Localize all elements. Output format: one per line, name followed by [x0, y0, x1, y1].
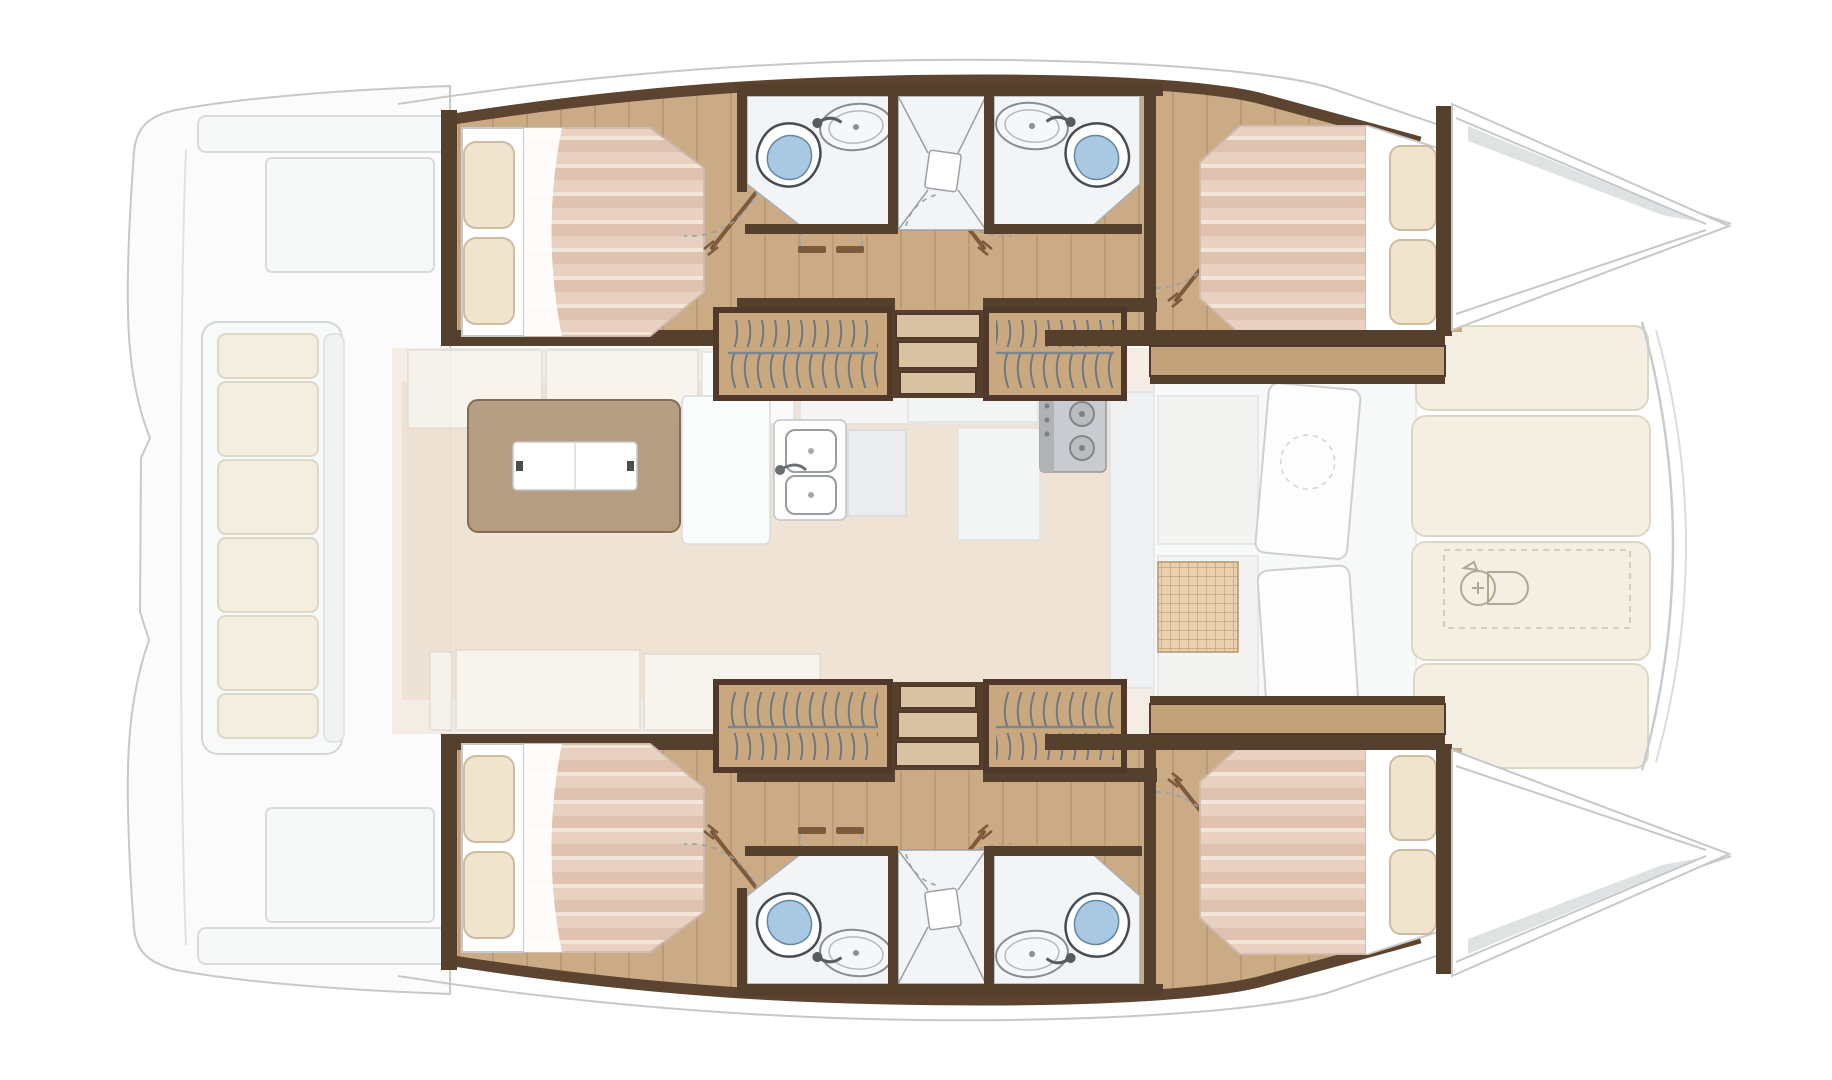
bench-cushion: [218, 616, 318, 690]
fwd-door-panel: [1255, 382, 1361, 559]
aft-locker: [266, 158, 434, 272]
bench-cushion: [218, 460, 318, 534]
sunpad-panel: [1412, 542, 1650, 660]
aft-beam-platform: [198, 116, 450, 152]
bench-cushion: [218, 538, 318, 612]
stove: [1040, 392, 1106, 472]
catamaran-layout-plan: [0, 0, 1832, 1080]
bench-backrest: [324, 334, 344, 742]
settee-cushion: [430, 652, 452, 730]
forward-cockpit: [1154, 352, 1416, 732]
aft-beam-platform: [198, 928, 450, 964]
fwd-bench: [1158, 396, 1258, 544]
sunpad-panel: [1412, 416, 1650, 536]
aft-bench: [202, 322, 344, 754]
companionway-band: [1110, 392, 1154, 688]
fwd-door-panel: [1257, 565, 1359, 717]
foredeck: [1412, 322, 1686, 770]
galley-cabinet: [958, 428, 1040, 540]
woven-mat: [1158, 562, 1238, 652]
saloon-table: [468, 400, 680, 532]
sunpad-panel: [1416, 326, 1648, 410]
galley-appliance: [848, 430, 906, 516]
galley-sink: [774, 420, 846, 520]
galley-counter: [682, 396, 770, 544]
bench-cushion: [218, 334, 318, 378]
bench-cushion: [218, 382, 318, 456]
foredeck-edge-outer: [1656, 330, 1686, 762]
bench-cushion: [218, 694, 318, 738]
aft-locker: [266, 808, 434, 922]
settee-cushion: [456, 650, 640, 730]
